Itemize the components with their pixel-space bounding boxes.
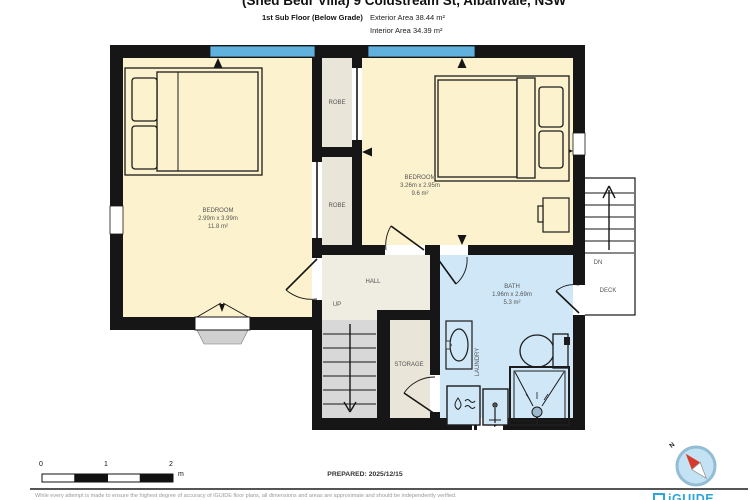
room-area: 5.3 m²: [492, 300, 532, 308]
bed-icon: [435, 76, 569, 181]
scale-unit: m: [178, 471, 184, 478]
room-area: 11.8 m²: [198, 224, 238, 232]
room-dims: 3.26m x 2.95m: [400, 183, 440, 191]
room-label-robe-bottom: ROBE: [328, 203, 345, 209]
room-label-robe-top: ROBE: [328, 100, 345, 106]
room-label-hall: HALL: [365, 279, 380, 285]
room-label-bath: BATH 1.96m x 2.69m 5.3 m²: [492, 284, 532, 307]
footer-divider: [30, 488, 748, 490]
window-top-right: [368, 46, 475, 57]
exterior-area: Exterior Area 38.44 m²: [370, 13, 445, 22]
prepared-date: PREPARED: 2025/12/15: [327, 471, 402, 478]
room-name: BEDROOM: [400, 175, 440, 183]
stairs-down-label: DN: [594, 260, 603, 266]
room-dims: 1.96m x 2.69m: [492, 292, 532, 300]
room-label-bedroom-left: BEDROOM 2.99m x 3.99m 11.8 m²: [198, 208, 238, 231]
room-name: BEDROOM: [198, 208, 238, 216]
storage-floor: [390, 320, 430, 418]
room-dims: 2.99m x 3.99m: [198, 216, 238, 224]
brand-logo-text: iGUIDE: [668, 492, 714, 500]
window-right-wall: [573, 133, 585, 155]
scale-bar: [42, 474, 173, 482]
interior-area: Interior Area 34.39 m²: [370, 26, 443, 35]
hall-floor-ext: [322, 310, 377, 320]
vanity-sink-icon: [446, 321, 472, 369]
scale-tick-1: 1: [104, 461, 108, 468]
room-label-bedroom-right: BEDROOM 3.26m x 2.95m 9.6 m²: [400, 175, 440, 198]
room-area: 9.6 m²: [400, 191, 440, 199]
window-well: [197, 330, 248, 344]
window-top-left: [210, 46, 315, 57]
scale-tick-0: 0: [39, 461, 43, 468]
laundry-tub-icon: [483, 389, 508, 425]
room-label-laundry: LAUNDRY: [475, 348, 481, 377]
floor-label: 1st Sub Floor (Below Grade): [262, 13, 363, 22]
nightstand-icon: [538, 198, 569, 232]
robe-bottom-floor: [322, 157, 352, 245]
floor-plan-svg: [0, 0, 750, 500]
brand-logo: iGUIDE: [653, 492, 714, 500]
washer-icon: [447, 386, 480, 425]
page-title: (Shed Bedr Villa) 9 Coldstream St, Alban…: [242, 0, 566, 8]
room-label-storage: STORAGE: [394, 362, 423, 368]
room-label-deck: DECK: [600, 288, 617, 294]
brand-logo-icon: [653, 493, 665, 500]
toilet-icon: [520, 334, 570, 368]
bed-icon: [125, 68, 262, 175]
room-name: BATH: [492, 284, 532, 292]
floor-plan-page: (Shed Bedr Villa) 9 Coldstream St, Alban…: [0, 0, 750, 500]
stairs-up-label: UP: [333, 302, 341, 308]
scale-tick-2: 2: [169, 461, 173, 468]
disclaimer-text: While every attempt is made to ensure th…: [35, 493, 457, 499]
niche-left-wall: [110, 206, 123, 234]
compass-icon: [677, 447, 715, 485]
